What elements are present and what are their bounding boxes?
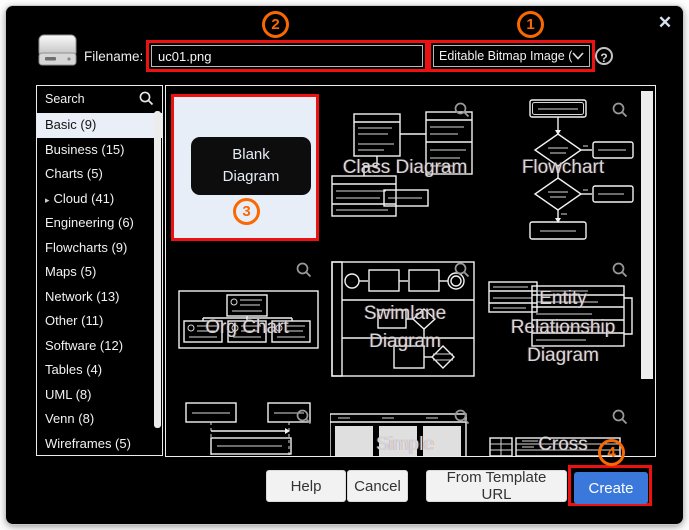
zoom-preview-icon[interactable] [612, 102, 628, 118]
filename-label: Filename: [84, 49, 143, 64]
sidebar-item-basic[interactable]: Basic (9) [37, 113, 162, 138]
blank-diagram-tile[interactable]: Blank Diagram [191, 137, 311, 195]
template-class-diagram[interactable]: Class Diagram [330, 94, 480, 242]
template-swimlane-diagram[interactable]: Swimlane Diagram [330, 254, 480, 402]
template-sequence[interactable] [172, 401, 322, 457]
zoom-preview-icon[interactable] [454, 409, 470, 425]
annotation-number-1: 1 [517, 11, 544, 38]
template-grid-panel: Blank Diagram 3 Class Diagram [165, 85, 656, 457]
zoom-preview-icon[interactable] [612, 409, 628, 425]
zoom-preview-icon[interactable] [454, 102, 470, 118]
sidebar-item-cloud[interactable]: ▸Cloud (41) [37, 187, 162, 212]
create-button[interactable]: Create [574, 472, 648, 504]
sidebar-scrollbar[interactable] [154, 111, 161, 428]
sidebar-item-network[interactable]: Network (13) [37, 285, 162, 310]
template-blank-diagram[interactable]: Blank Diagram 3 [171, 94, 319, 241]
sidebar-item-uml[interactable]: UML (8) [37, 383, 162, 408]
sidebar-item-engineering[interactable]: Engineering (6) [37, 211, 162, 236]
from-template-url-button[interactable]: From Template URL [426, 470, 567, 502]
filename-input[interactable] [151, 45, 423, 67]
annotation-number-3: 3 [233, 198, 260, 225]
expand-arrow-icon[interactable]: ▸ [45, 195, 50, 205]
search-box[interactable]: Search [37, 86, 162, 114]
sidebar-item-flowcharts[interactable]: Flowcharts (9) [37, 236, 162, 261]
template-simple[interactable]: Simple [330, 401, 480, 457]
sidebar-item-wireframes[interactable]: Wireframes (5) [37, 432, 162, 457]
zoom-preview-icon[interactable] [454, 262, 470, 278]
template-entity-relationship-diagram[interactable]: Entity Relationship Diagram [488, 254, 638, 402]
annotation-number-2: 2 [262, 11, 289, 38]
create-diagram-dialog: ✕ Filename: Editable Bitmap Image (.p ? … [6, 6, 683, 524]
category-list: Basic (9) Business (15) Charts (5) ▸Clou… [37, 113, 162, 455]
search-label: Search [45, 92, 85, 106]
format-dropdown-value: Editable Bitmap Image (.p [439, 49, 572, 63]
sidebar-item-other[interactable]: Other (11) [37, 309, 162, 334]
template-flowchart[interactable]: Flowchart [488, 94, 638, 242]
sidebar-item-maps[interactable]: Maps (5) [37, 260, 162, 285]
help-icon[interactable]: ? [595, 47, 613, 65]
format-annotation-box: Editable Bitmap Image (.p [428, 40, 595, 72]
template-panel-scrollbar[interactable] [641, 91, 653, 379]
sidebar-item-business[interactable]: Business (15) [37, 138, 162, 163]
filename-annotation-box [146, 40, 428, 72]
cancel-button[interactable]: Cancel [347, 470, 408, 502]
format-dropdown[interactable]: Editable Bitmap Image (.p [433, 45, 590, 67]
sidebar-item-charts[interactable]: Charts (5) [37, 162, 162, 187]
create-annotation-box: Create [568, 465, 652, 506]
chevron-down-icon [572, 52, 584, 60]
help-button[interactable]: Help [266, 470, 346, 502]
zoom-preview-icon[interactable] [296, 409, 312, 425]
zoom-preview-icon[interactable] [296, 262, 312, 278]
sidebar-item-cloud-label: Cloud (41) [54, 191, 115, 206]
sidebar-item-tables[interactable]: Tables (4) [37, 358, 162, 383]
annotation-number-4: 4 [598, 439, 625, 466]
close-icon[interactable]: ✕ [654, 12, 676, 34]
zoom-preview-icon[interactable] [612, 262, 628, 278]
disk-drive-icon [36, 32, 80, 72]
template-category-sidebar: Search Basic (9) Business (15) Charts (5… [36, 85, 163, 456]
sidebar-item-software[interactable]: Software (12) [37, 334, 162, 359]
sidebar-item-venn[interactable]: Venn (8) [37, 407, 162, 432]
template-org-chart[interactable]: Org Chart [172, 254, 322, 402]
search-icon [139, 91, 154, 106]
